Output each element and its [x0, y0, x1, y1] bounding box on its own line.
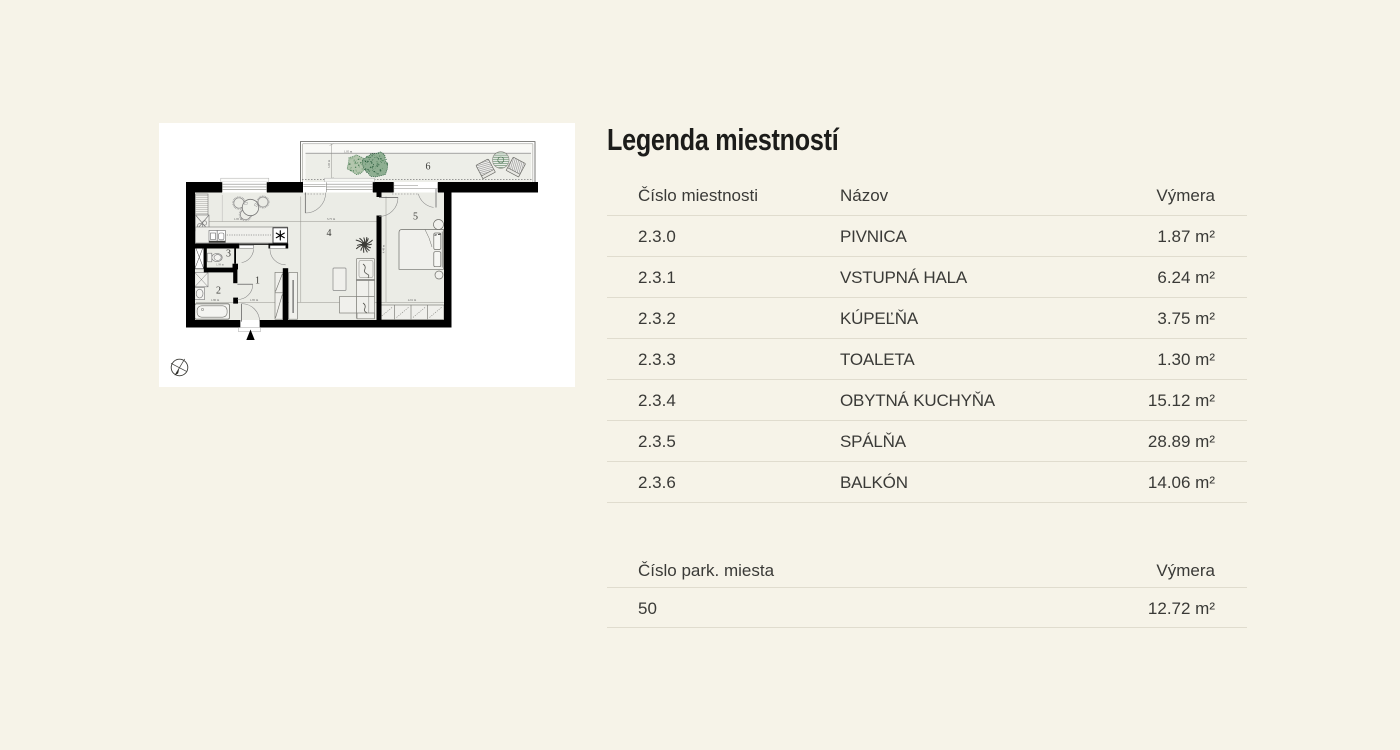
- svg-text:1.99 m: 1.99 m: [216, 264, 225, 267]
- svg-text:3.05 m: 3.05 m: [327, 159, 331, 168]
- svg-text:1: 1: [255, 276, 260, 287]
- svg-text:3: 3: [226, 249, 231, 260]
- svg-text:2: 2: [216, 286, 221, 297]
- svg-text:4.48 m: 4.48 m: [382, 244, 386, 253]
- svg-text:5: 5: [413, 212, 418, 223]
- svg-text:1.85 m: 1.85 m: [250, 298, 259, 302]
- svg-text:1.80 m: 1.80 m: [211, 298, 220, 302]
- svg-text:3.75 m: 3.75 m: [327, 217, 336, 221]
- svg-text:4.91 m: 4.91 m: [408, 298, 417, 302]
- svg-text:4: 4: [327, 228, 332, 239]
- svg-text:1.05 m: 1.05 m: [344, 150, 353, 154]
- svg-text:6: 6: [426, 162, 431, 173]
